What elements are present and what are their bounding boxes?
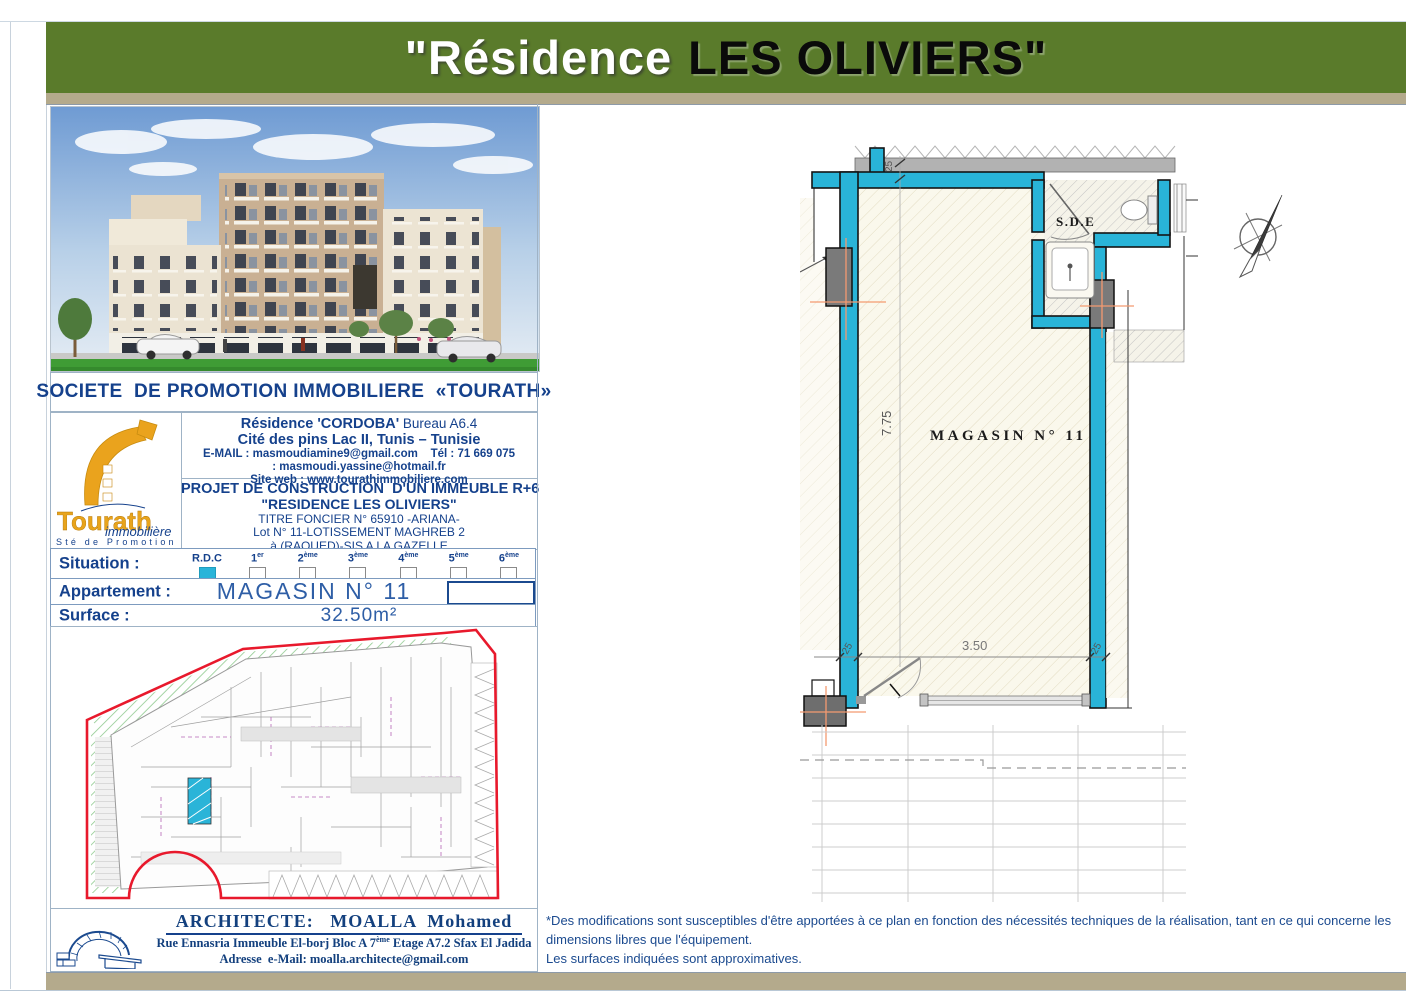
surface-label: Surface : bbox=[59, 606, 130, 625]
site-plan-art bbox=[51, 627, 537, 909]
address-city: Cité des pins Lac II, Tunis – Tunisie bbox=[181, 432, 537, 448]
disclaimer-line1: *Des modifications sont susceptibles d'ê… bbox=[546, 912, 1402, 950]
title-les-oliviers: LES OLIVIERS" bbox=[688, 30, 1047, 85]
architect-logo bbox=[55, 911, 151, 969]
corridor-hatch-band bbox=[1114, 330, 1184, 362]
sidewalk-grid bbox=[812, 725, 1186, 902]
situation-label: Situation : bbox=[59, 554, 140, 573]
tourath-logo-art: Tourath immobilière Sté de Promotion bbox=[51, 413, 179, 547]
company-header: SOCIETE DE PROMOTION IMMOBILIERE «TOURAT… bbox=[50, 372, 538, 412]
north-compass bbox=[1234, 195, 1282, 277]
title-banner: "Résidence LES OLIVIERS" bbox=[46, 22, 1406, 94]
building-render-image bbox=[50, 106, 540, 372]
apartment-value: MAGASIN N° 11 bbox=[181, 579, 447, 604]
info-table: Tourath immobilière Sté de Promotion Rés… bbox=[50, 412, 538, 550]
floor-plan-art: S.D.E MAGASIN N° 11 25 7.75 3.50 25 25 bbox=[800, 140, 1300, 906]
dim-25-top: 25 bbox=[884, 160, 895, 172]
vent-shaft bbox=[1174, 184, 1186, 232]
surface-row: Surface : 32.50m² bbox=[50, 604, 536, 627]
panel-divider bbox=[537, 104, 538, 970]
boundary-zigzag bbox=[855, 146, 1175, 158]
architect-heading: ARCHITECTE: MOALLA Mohamed bbox=[166, 911, 523, 935]
site-parking-right bbox=[471, 663, 497, 867]
floor-4: 4ème bbox=[385, 550, 431, 582]
washbasin bbox=[1046, 242, 1094, 298]
corridor-hatch-strip bbox=[1106, 332, 1128, 698]
email-primary: masmoudiamine9@gmail.com bbox=[253, 448, 418, 460]
tourath-logo: Tourath immobilière Sté de Promotion bbox=[51, 413, 182, 549]
company-address: Résidence 'CORDOBA' Bureau A6.4 Cité des… bbox=[181, 413, 537, 479]
disclaimer-line2: Les surfaces indiquées sont approximativ… bbox=[546, 950, 1402, 969]
site-parking-bottom bbox=[269, 871, 497, 899]
address-bureau: Bureau A6.4 bbox=[399, 416, 477, 431]
apartment-empty-box[interactable] bbox=[447, 581, 535, 605]
disclaimer: *Des modifications sont susceptibles d'ê… bbox=[546, 912, 1402, 969]
floor-5: 5ème bbox=[436, 550, 482, 582]
residence-sign bbox=[353, 265, 377, 309]
floor-1: 1er bbox=[234, 550, 280, 582]
lawn-shade bbox=[51, 367, 539, 371]
floor-checkbox-row: R.D.C 1er 2ème 3ème 4ème 5ème 6ème bbox=[184, 550, 532, 582]
site-plan-image bbox=[50, 626, 538, 910]
project-line1: PROJET DE CONSTRUCTION D'UN IMMEUBLE R+6 bbox=[181, 481, 537, 497]
architect-text: ARCHITECTE: MOALLA Mohamed Rue Ennasria … bbox=[155, 911, 533, 967]
architect-box: ARCHITECTE: MOALLA Mohamed Rue Ennasria … bbox=[50, 908, 538, 972]
surface-value: 32.50m² bbox=[181, 605, 537, 626]
tel-number: 71 669 075 bbox=[457, 448, 515, 460]
dim-350: 3.50 bbox=[962, 638, 987, 653]
project-line2: "RESIDENCE LES OLIVIERS" bbox=[181, 497, 537, 513]
building-render-art bbox=[51, 107, 539, 371]
shopfront-glazing bbox=[920, 694, 1090, 706]
email-label: E-MAIL : bbox=[203, 448, 253, 460]
page-bottom-rule bbox=[0, 990, 1406, 991]
floor-3: 3ème bbox=[335, 550, 381, 582]
magasin-label: MAGASIN N° 11 bbox=[930, 428, 1087, 444]
tel-label: Tél : bbox=[418, 448, 458, 460]
logo-windows bbox=[103, 465, 112, 501]
site-highlighted-unit[interactable] bbox=[188, 778, 211, 824]
architect-email: Adresse e-Mail: moalla.architecte@gmail.… bbox=[155, 952, 533, 968]
project-line3: TITRE FONCIER N° 65910 -ARIANA- bbox=[181, 513, 537, 526]
project-description: PROJET DE CONSTRUCTION D'UN IMMEUBLE R+6… bbox=[181, 479, 537, 549]
title-residence: "Résidence bbox=[405, 30, 672, 85]
logo-subtitle: Sté de Promotion bbox=[56, 537, 177, 547]
logo-arch bbox=[85, 427, 146, 505]
top-tan-strip bbox=[46, 93, 1406, 105]
bottom-tan-strip bbox=[46, 972, 1406, 990]
apartment-label: Appartement : bbox=[59, 582, 171, 601]
page-left-margin bbox=[10, 22, 47, 989]
address-residence: Résidence 'CORDOBA' bbox=[241, 416, 399, 432]
floor-2: 2ème bbox=[285, 550, 331, 582]
sde-label: S.D.E bbox=[1056, 214, 1095, 229]
email-secondary: : masmoudi.yassine@hotmail.fr bbox=[181, 461, 537, 474]
apartment-row: Appartement : MAGASIN N° 11 bbox=[50, 578, 536, 605]
project-line4: Lot N° 11-LOTISSEMENT MAGHREB 2 bbox=[181, 526, 537, 539]
floor-rdc: R.D.C bbox=[184, 550, 230, 582]
dim-775: 7.75 bbox=[879, 411, 894, 436]
floor-6: 6ème bbox=[486, 550, 532, 582]
situation-row: Situation : R.D.C 1er 2ème 3ème 4ème 5èm… bbox=[50, 548, 536, 579]
floor-plan-drawing: S.D.E MAGASIN N° 11 25 7.75 3.50 25 25 bbox=[800, 140, 1300, 906]
